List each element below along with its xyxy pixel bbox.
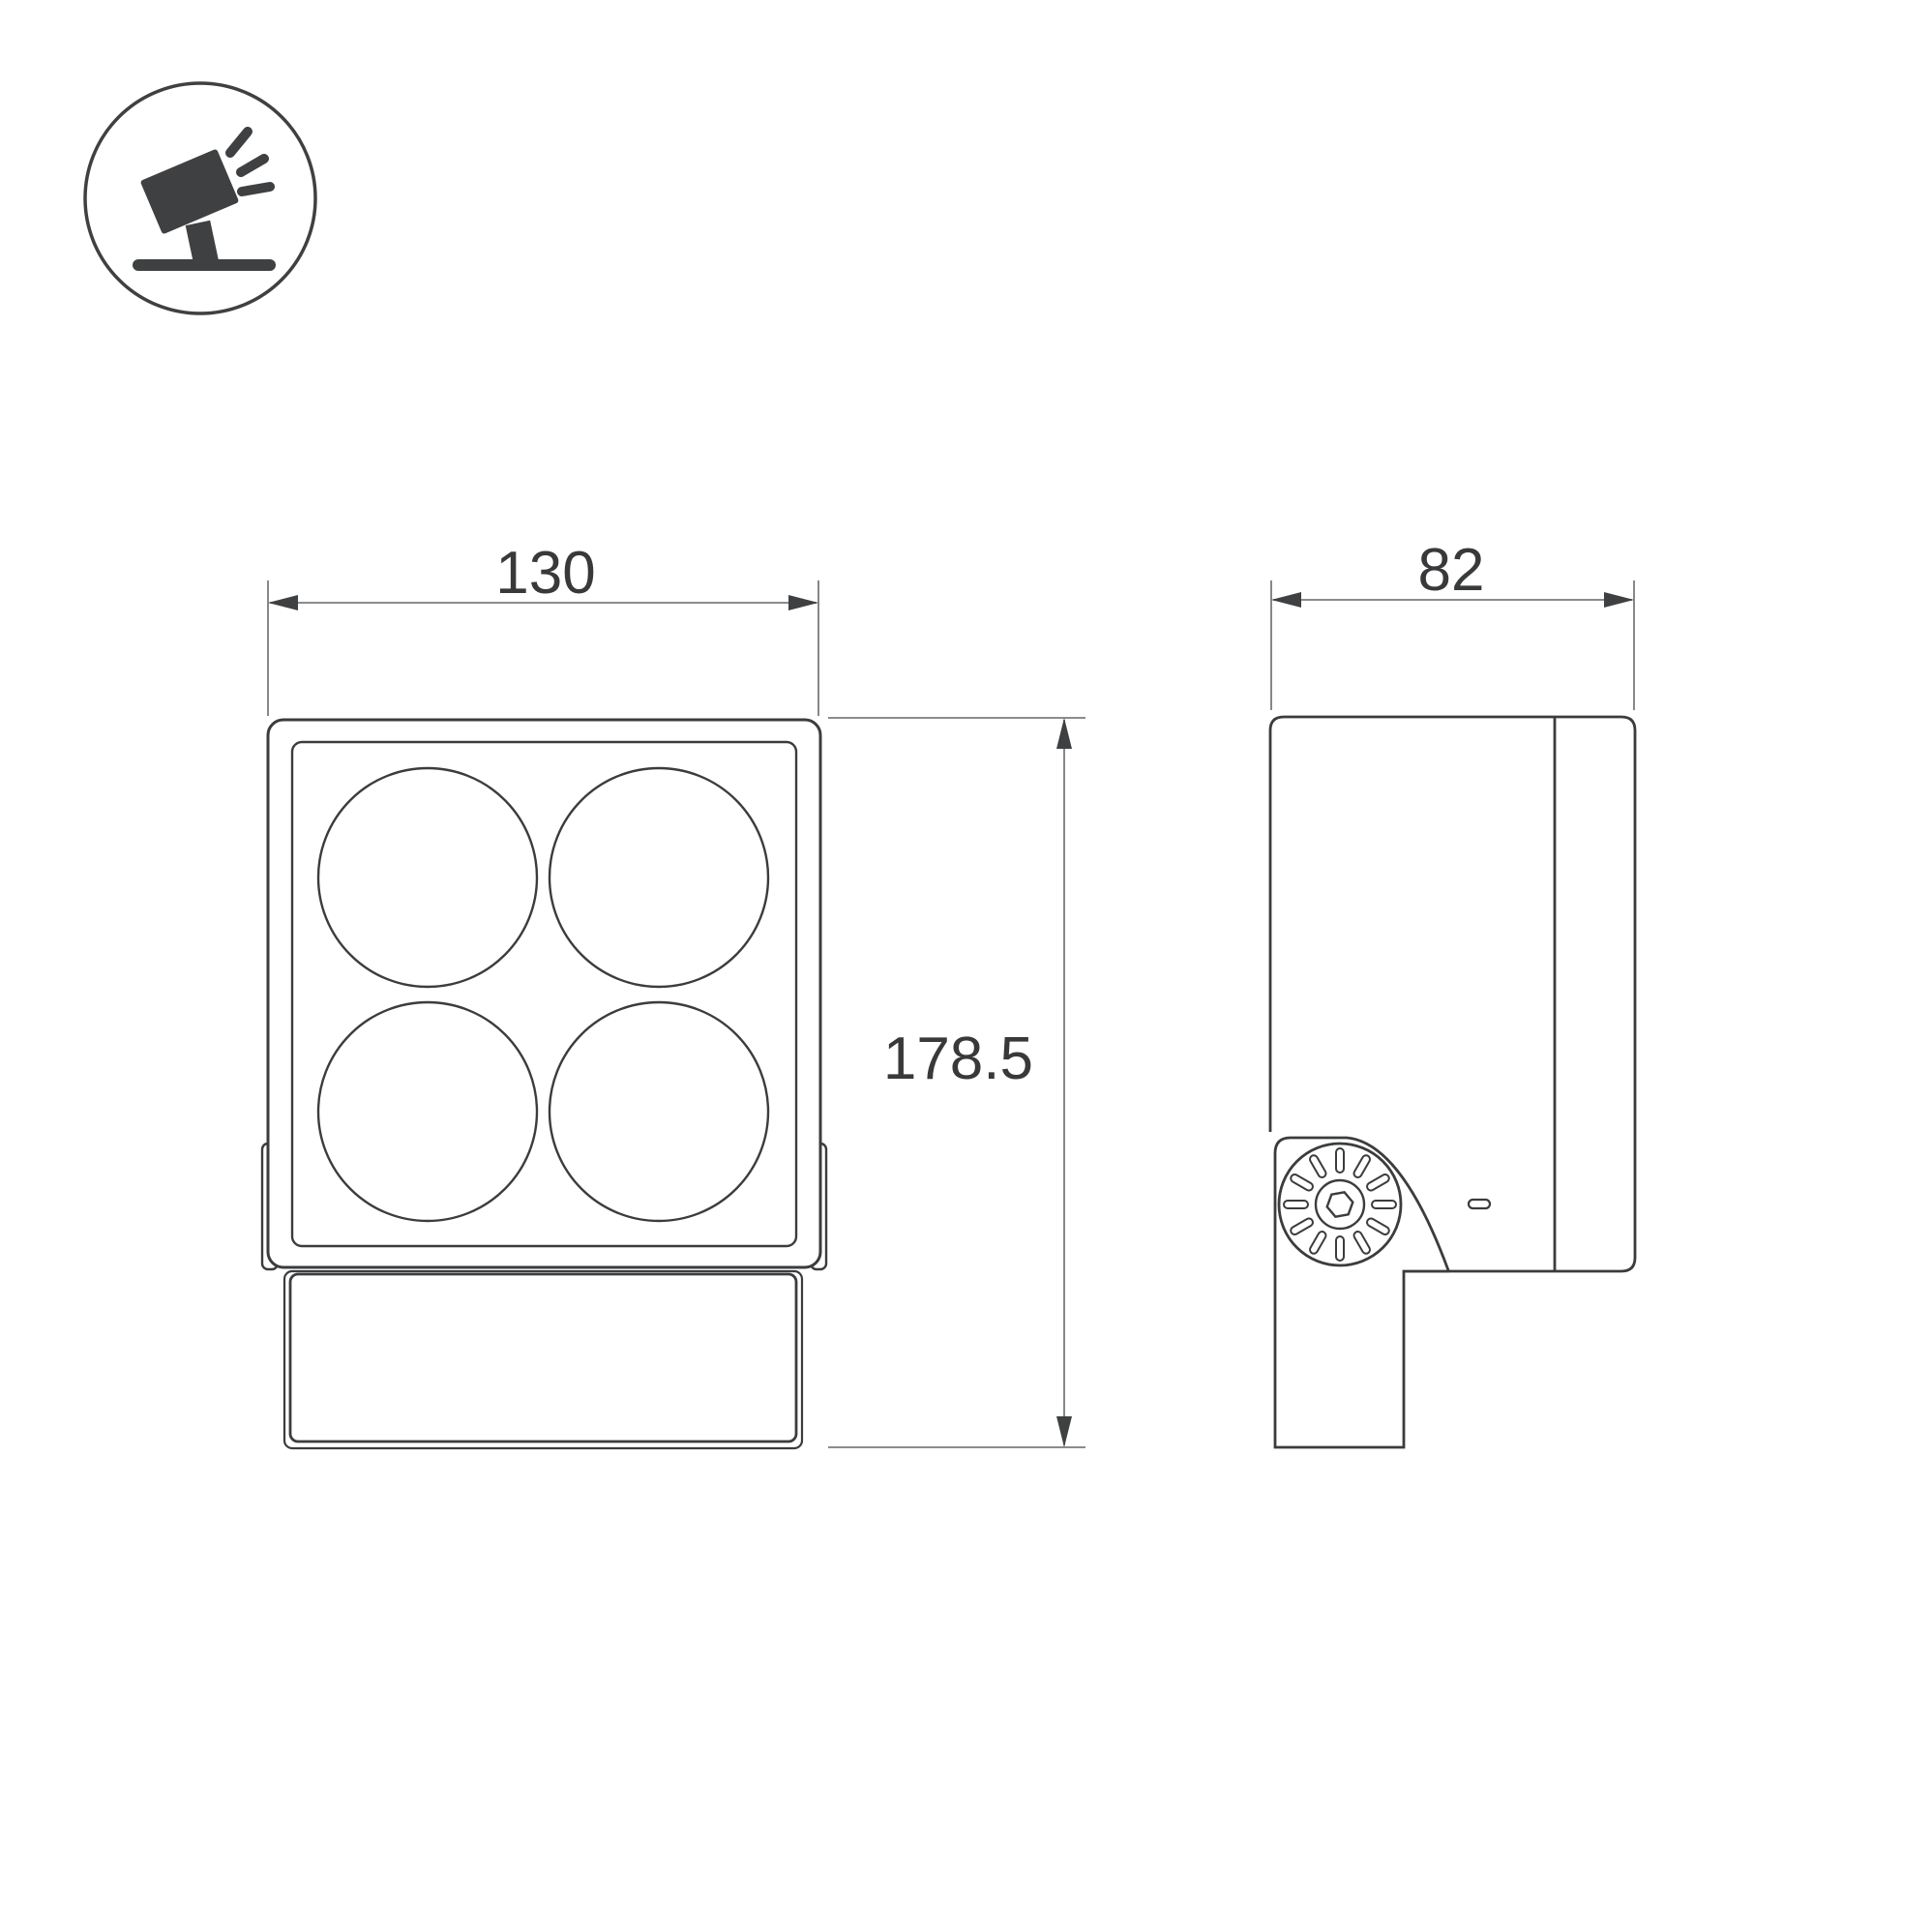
icon-light-ray-icon — [241, 159, 264, 172]
floodlight-icon — [85, 83, 315, 313]
icon-ground-bar — [133, 259, 276, 271]
front-width-label: 130 — [495, 540, 595, 607]
arrow-left-icon — [268, 595, 298, 610]
driver-box-outer — [284, 1271, 802, 1448]
technical-drawing-page: 130 178.5 — [0, 0, 1932, 1932]
dimension-overall-height: 178.5 — [828, 718, 1085, 1447]
floodlight-dimension-drawing: 130 178.5 — [0, 0, 1932, 1932]
side-depth-label: 82 — [1418, 537, 1485, 604]
arrow-left-icon — [1271, 592, 1301, 608]
housing-seam-slot — [1469, 1200, 1490, 1208]
icon-lamp-head — [140, 149, 240, 235]
driver-box-inner — [290, 1274, 796, 1442]
icon-light-ray-icon — [230, 132, 248, 153]
front-view: 130 178.5 — [262, 540, 1085, 1448]
arrow-down-icon — [1056, 1416, 1072, 1447]
pivot-knob — [1279, 1144, 1401, 1265]
arrow-up-icon — [1056, 718, 1072, 749]
pivot-knob-outer-ring — [1279, 1144, 1401, 1265]
icon-light-ray-icon — [242, 187, 270, 192]
arrow-right-icon — [788, 595, 818, 610]
arrow-right-icon — [1604, 592, 1634, 608]
side-view: 82 — [1270, 537, 1635, 1447]
overall-height-label: 178.5 — [883, 1025, 1033, 1092]
dimension-front-width: 130 — [268, 540, 818, 716]
driver-box-front — [284, 1271, 802, 1448]
dimension-side-depth: 82 — [1271, 537, 1634, 710]
